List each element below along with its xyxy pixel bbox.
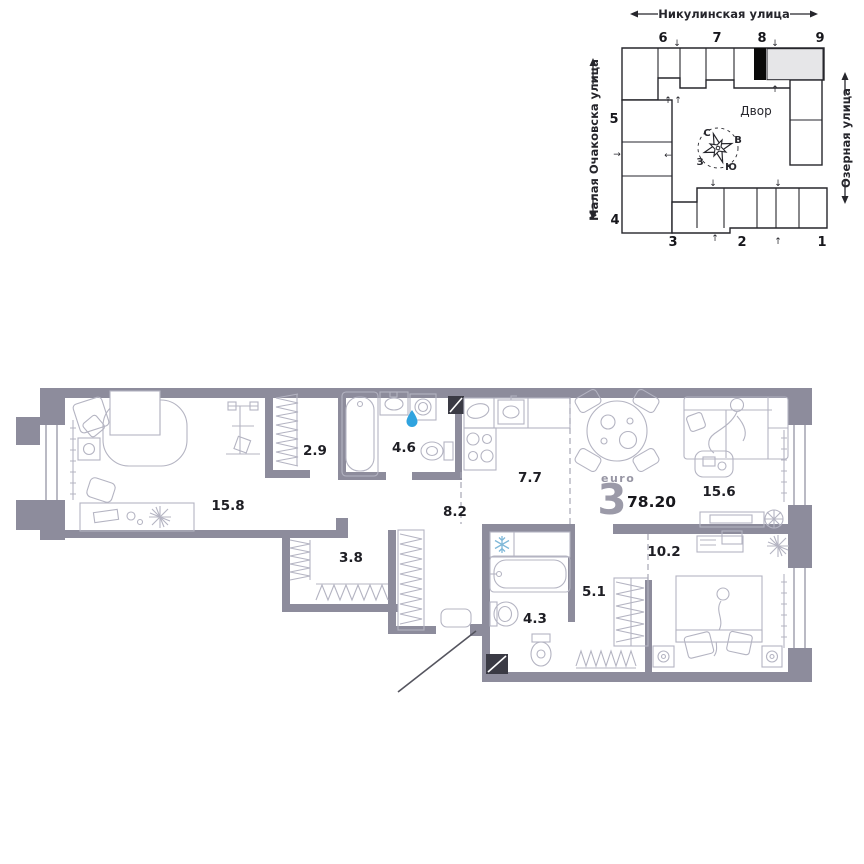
sink bbox=[490, 602, 518, 626]
floorplan-page: Никулинская улица Малая Очаковска улица … bbox=[0, 0, 864, 864]
area-label-kitchen: 7.7 bbox=[518, 470, 542, 486]
area-label-closet: 3.8 bbox=[339, 550, 363, 566]
plant bbox=[149, 506, 171, 528]
dining-table bbox=[574, 388, 661, 473]
double-bed bbox=[103, 391, 187, 466]
closet-hangers bbox=[276, 394, 298, 466]
exercise-machine bbox=[226, 402, 260, 454]
entrance-door bbox=[398, 631, 476, 692]
stove bbox=[467, 433, 493, 462]
closet-hangers bbox=[290, 540, 388, 600]
area-label-bedroom-main: 15.8 bbox=[211, 498, 244, 514]
apartment-type-badge: euro 3 78.20 bbox=[597, 472, 676, 524]
desk bbox=[697, 531, 743, 552]
person-sitting bbox=[709, 399, 746, 454]
apartment-floor-plan: 15.8 2.9 4.6 8.2 7.7 15.6 3.8 5.1 4.3 10… bbox=[0, 0, 864, 864]
area-label-hallway: 8.2 bbox=[443, 504, 467, 520]
area-label-bedroom-second: 10.2 bbox=[647, 544, 680, 560]
bathtub bbox=[490, 556, 570, 592]
plant bbox=[767, 535, 789, 557]
area-label-hall-entry: 5.1 bbox=[582, 584, 606, 600]
toilet bbox=[531, 634, 551, 666]
area-label-bathroom-small: 4.3 bbox=[523, 611, 547, 627]
area-label-bathroom-main: 4.6 bbox=[392, 440, 416, 456]
area-label-living-room: 15.6 bbox=[702, 484, 735, 500]
double-bed bbox=[676, 576, 762, 659]
nightstand bbox=[78, 438, 100, 460]
apartment-type-number: 3 bbox=[597, 475, 626, 524]
coffee-table bbox=[695, 451, 733, 477]
toilet bbox=[421, 442, 453, 460]
nightstand bbox=[762, 646, 782, 667]
area-label-wardrobe: 2.9 bbox=[303, 443, 327, 459]
nightstand bbox=[653, 646, 674, 667]
tall-wardrobe bbox=[398, 530, 424, 630]
apartment-total-area: 78.20 bbox=[627, 493, 676, 511]
kitchen-counter bbox=[464, 396, 570, 470]
plant bbox=[765, 510, 783, 528]
sofa bbox=[684, 397, 788, 459]
bathtub bbox=[342, 392, 378, 476]
desk bbox=[80, 476, 194, 531]
entry-bench bbox=[441, 609, 471, 627]
fridge bbox=[490, 532, 570, 557]
